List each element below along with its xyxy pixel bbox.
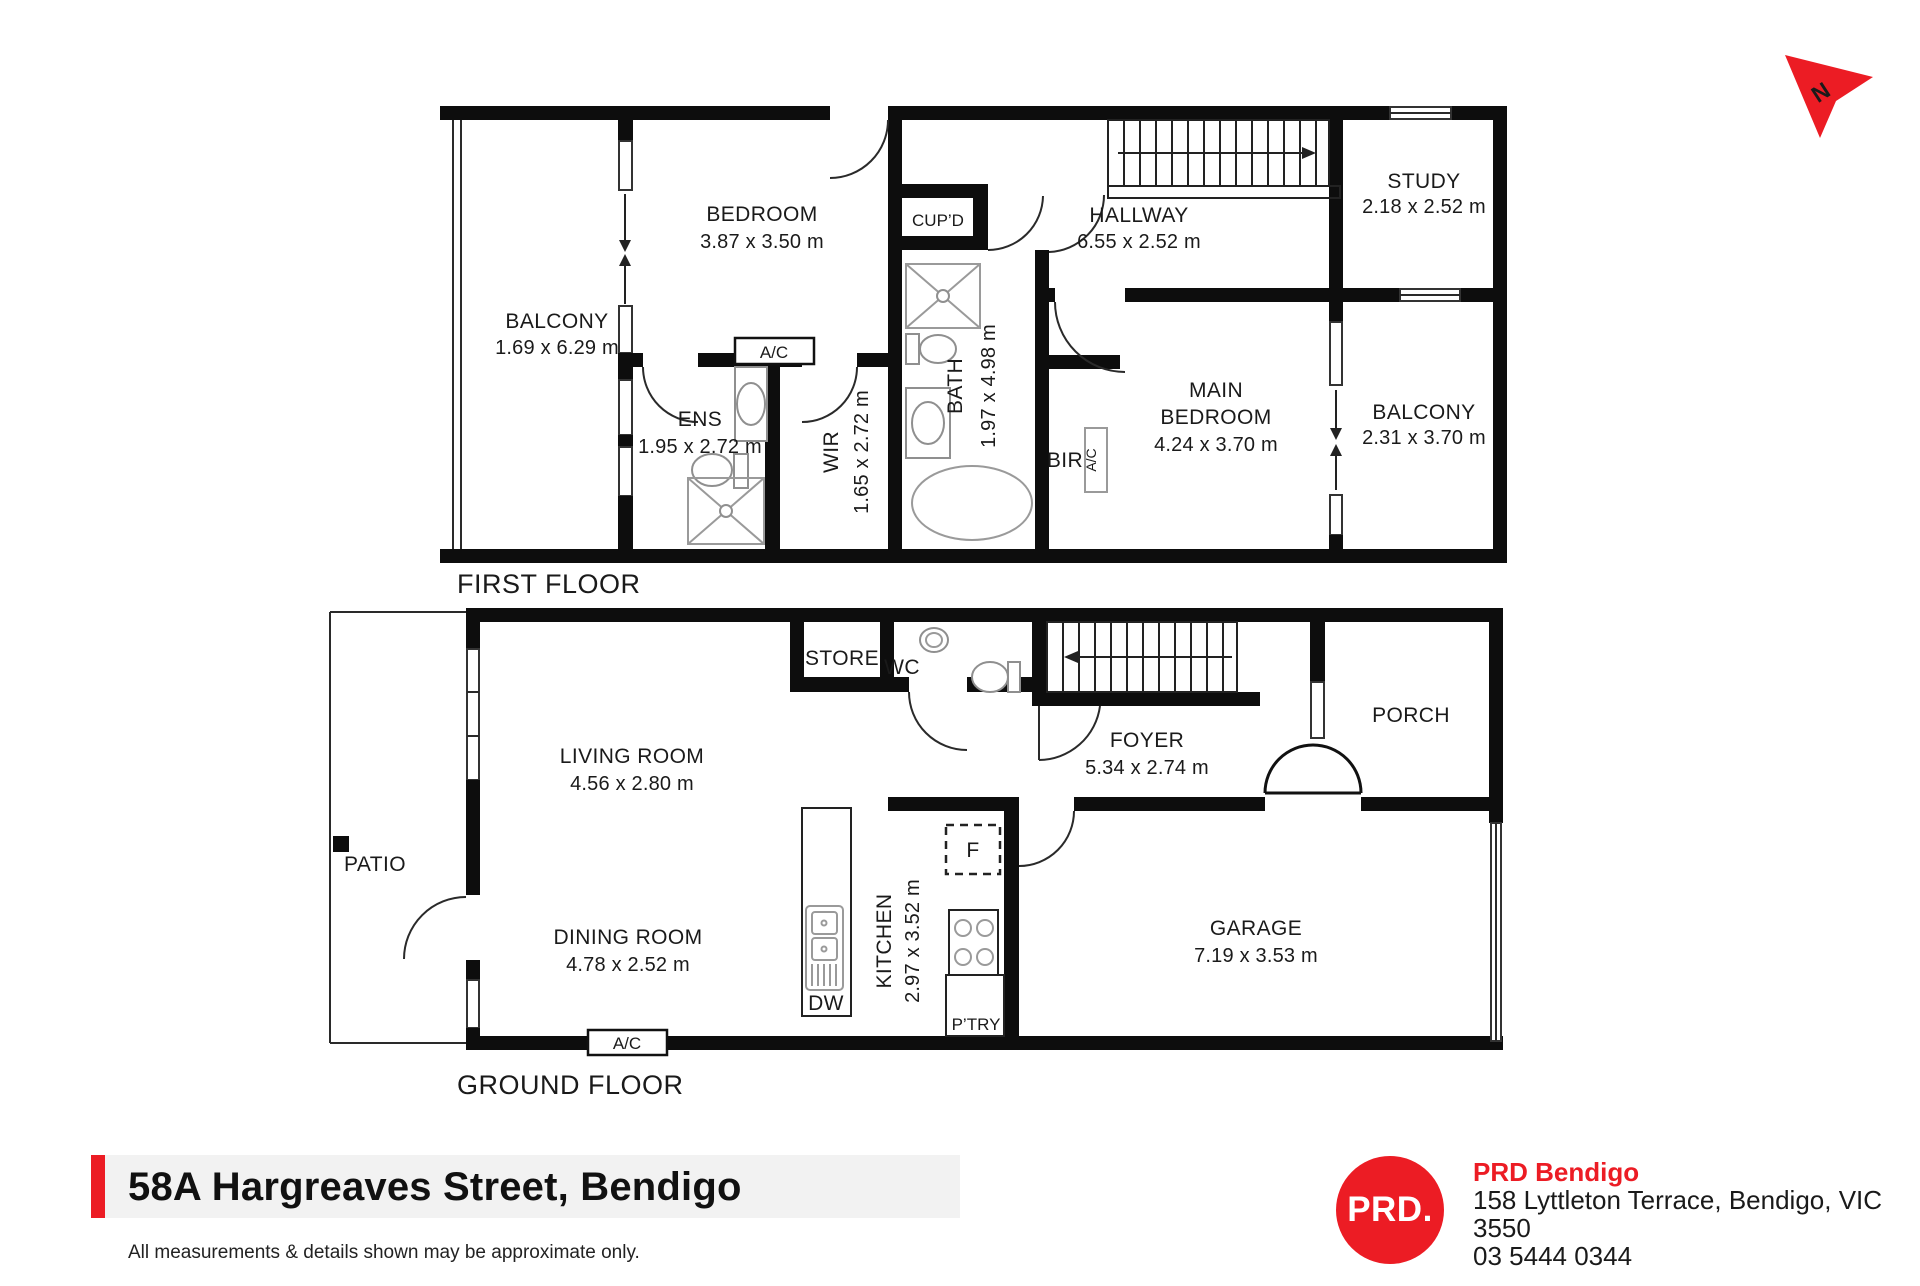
room-label-hallway: HALLWAY [1089,204,1188,227]
room-label-main-bedroom-2: BEDROOM [1160,406,1271,429]
ens-ac-label: A/C [760,343,788,362]
agency-address: 158 Lyttleton Terrace, Bendigo, VIC 3550 [1473,1186,1920,1242]
room-label-patio: PATIO [344,853,406,876]
foyer-door [1039,706,1100,760]
stove [949,910,998,975]
agency-phone: 03 5444 0344 [1473,1242,1920,1270]
ground-ac-unit: A/C [588,1030,667,1055]
room-dims-wir: 1.65 x 2.72 m [851,390,873,514]
room-dims-ens: 1.95 x 2.72 m [638,436,762,458]
room-label-ens: ENS [678,408,722,431]
ground-ac-label: A/C [613,1034,641,1053]
prd-logo-text: PRD. [1347,1190,1433,1230]
room-dims-main-bedroom: 4.24 x 3.70 m [1154,434,1278,456]
room-dims-balcony-right: 2.31 x 3.70 m [1362,427,1486,449]
bath-fixtures [906,264,1032,540]
room-label-bedroom: BEDROOM [706,203,817,226]
room-label-bath: BATH [944,358,967,414]
first-floor-plan: A/C [440,106,1507,599]
room-label-bir: BIR [1047,449,1083,472]
room-dims-hallway: 6.55 x 2.52 m [1077,231,1201,253]
right-balcony-window-wall [1329,302,1343,549]
ground-west-wall [404,622,480,1036]
room-label-kitchen: KITCHEN [873,894,896,989]
room-dims-living: 4.56 x 2.80 m [570,773,694,795]
room-label-cupboard: CUP’D [912,211,964,230]
room-dims-study: 2.18 x 2.52 m [1362,196,1486,218]
bir-ac-label: A/C [1083,448,1099,471]
room-label-main-bedroom-1: MAIN [1189,379,1243,402]
stairs-ground-floor [1032,622,1260,706]
stairs-first-floor [1108,120,1340,198]
ground-floor-title: GROUND FLOOR [457,1070,684,1100]
room-label-living: LIVING ROOM [560,745,704,768]
room-dims-bedroom: 3.87 x 3.50 m [700,231,824,253]
room-dims-kitchen: 2.97 x 3.52 m [902,879,924,1003]
room-dims-bath: 1.97 x 4.98 m [978,324,1000,448]
fridge-label: F [966,839,979,862]
room-label-balcony-right: BALCONY [1372,401,1475,424]
ens-ac-unit: A/C [735,338,814,364]
room-dims-foyer: 5.34 x 2.74 m [1085,757,1209,779]
room-label-wir: WIR [820,431,843,473]
prd-logo: PRD. [1336,1156,1444,1264]
room-label-balcony-left: BALCONY [505,310,608,333]
room-label-store: STORE [805,647,879,670]
balcony-railing [453,120,461,549]
room-dims-garage: 7.19 x 3.53 m [1194,945,1318,967]
balcony-window-wall [618,120,633,549]
address-accent-bar [91,1155,105,1218]
room-dims-dining: 4.78 x 2.52 m [566,954,690,976]
kitchen-island [802,808,851,1016]
disclaimer-text: All measurements & details shown may be … [128,1242,640,1264]
property-address: 58A Hargreaves Street, Bendigo [128,1165,742,1210]
room-label-wc: WC [884,656,920,679]
room-label-porch: PORCH [1372,704,1450,727]
agency-details: PRD Bendigo 158 Lyttleton Terrace, Bendi… [1473,1158,1920,1270]
room-label-garage: GARAGE [1210,917,1302,940]
pantry-label: P’TRY [952,1015,1001,1034]
room-dims-balcony-left: 1.69 x 6.29 m [495,337,619,359]
room-label-dining: DINING ROOM [553,926,702,949]
north-arrow-icon: N [1785,55,1873,138]
agency-name: PRD Bendigo [1473,1158,1920,1186]
patio-outline [330,612,466,1043]
ground-floor-plan: A/C PATIO LIVING ROOM 4.56 x 2.80 m DINI… [330,608,1503,1100]
study-wall [1329,120,1343,288]
floorplan-canvas: N [0,0,1920,1281]
room-label-study: STUDY [1387,170,1460,193]
first-floor-walls [440,106,1507,563]
first-floor-title: FIRST FLOOR [457,569,641,599]
dishwasher-label: DW [808,992,844,1015]
room-label-foyer: FOYER [1110,729,1184,752]
